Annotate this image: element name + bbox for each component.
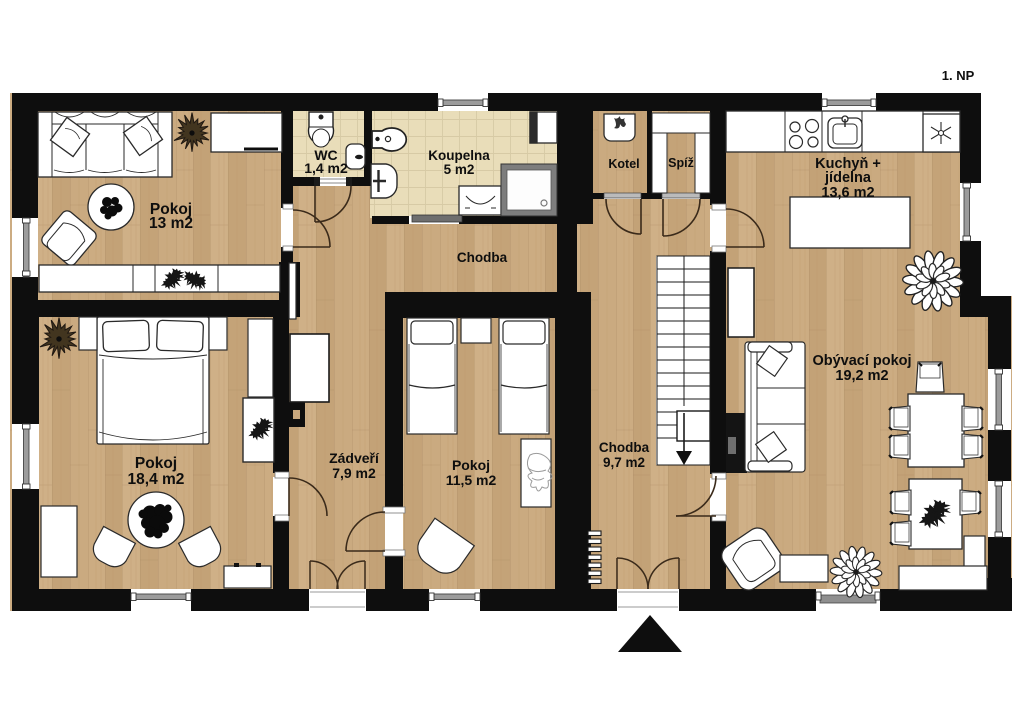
svg-text:Spíž: Spíž	[668, 156, 694, 170]
svg-text:13 m2: 13 m2	[149, 215, 193, 232]
svg-text:Pokoj: Pokoj	[452, 457, 490, 473]
svg-text:Zádveří: Zádveří	[329, 450, 380, 466]
svg-text:Pokoj: Pokoj	[135, 455, 177, 472]
svg-text:Chodba: Chodba	[599, 440, 650, 455]
svg-text:19,2 m2: 19,2 m2	[835, 368, 888, 384]
svg-text:11,5 m2: 11,5 m2	[446, 472, 497, 488]
svg-text:9,7 m2: 9,7 m2	[603, 455, 645, 470]
svg-text:1. NP: 1. NP	[942, 68, 975, 83]
svg-text:13,6 m2: 13,6 m2	[821, 185, 874, 201]
svg-text:Chodba: Chodba	[457, 250, 508, 265]
svg-text:7,9 m2: 7,9 m2	[332, 465, 376, 481]
svg-text:Obývací pokoj: Obývací pokoj	[812, 353, 911, 369]
svg-text:5 m2: 5 m2	[444, 162, 475, 177]
svg-text:1,4 m2: 1,4 m2	[304, 160, 348, 176]
svg-text:Kotel: Kotel	[608, 157, 639, 171]
svg-text:18,4 m2: 18,4 m2	[128, 471, 185, 488]
svg-text:Koupelna: Koupelna	[428, 148, 490, 163]
svg-text:jídelna: jídelna	[824, 170, 872, 186]
